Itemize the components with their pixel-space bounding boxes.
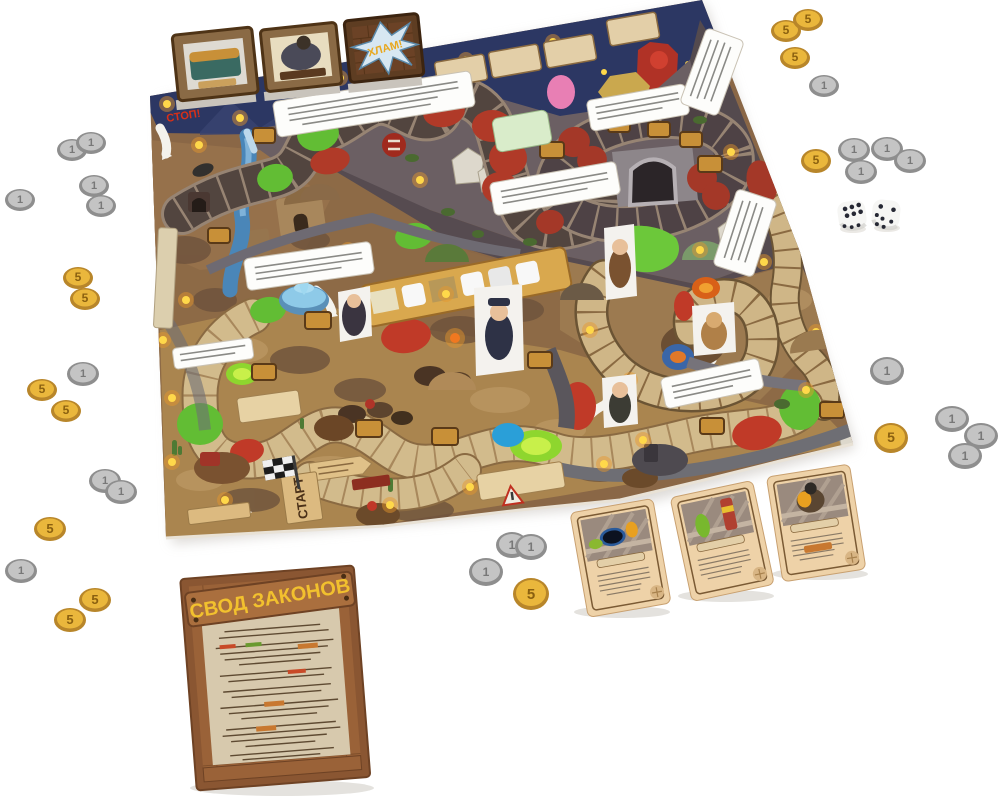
svg-text:1: 1 xyxy=(858,166,864,178)
svg-text:1: 1 xyxy=(118,486,124,498)
svg-text:5: 5 xyxy=(527,586,535,603)
svg-text:1: 1 xyxy=(851,144,857,156)
svg-text:1: 1 xyxy=(18,565,24,577)
svg-text:1: 1 xyxy=(884,364,891,378)
svg-text:1: 1 xyxy=(102,475,108,487)
svg-text:5: 5 xyxy=(46,521,53,536)
svg-text:1: 1 xyxy=(821,80,827,92)
svg-text:5: 5 xyxy=(82,291,89,305)
svg-text:5: 5 xyxy=(63,403,70,417)
svg-text:1: 1 xyxy=(962,449,969,463)
svg-text:1: 1 xyxy=(98,200,104,212)
svg-text:5: 5 xyxy=(887,429,895,445)
svg-text:1: 1 xyxy=(69,144,75,156)
svg-text:1: 1 xyxy=(884,143,890,155)
svg-text:5: 5 xyxy=(66,612,73,627)
svg-text:1: 1 xyxy=(483,565,490,579)
svg-text:1: 1 xyxy=(91,180,97,192)
svg-text:5: 5 xyxy=(813,153,820,167)
svg-text:1: 1 xyxy=(17,194,23,206)
svg-text:5: 5 xyxy=(39,382,46,396)
svg-text:5: 5 xyxy=(792,50,799,64)
svg-text:1: 1 xyxy=(509,538,516,552)
svg-text:5: 5 xyxy=(75,270,82,284)
svg-text:1: 1 xyxy=(907,155,913,167)
svg-text:5: 5 xyxy=(783,23,790,37)
svg-text:1: 1 xyxy=(88,137,94,149)
svg-text:5: 5 xyxy=(91,592,98,607)
svg-text:5: 5 xyxy=(805,12,812,26)
svg-text:1: 1 xyxy=(80,368,86,380)
svg-text:1: 1 xyxy=(978,429,985,443)
svg-text:1: 1 xyxy=(528,540,535,554)
svg-text:1: 1 xyxy=(949,412,956,426)
